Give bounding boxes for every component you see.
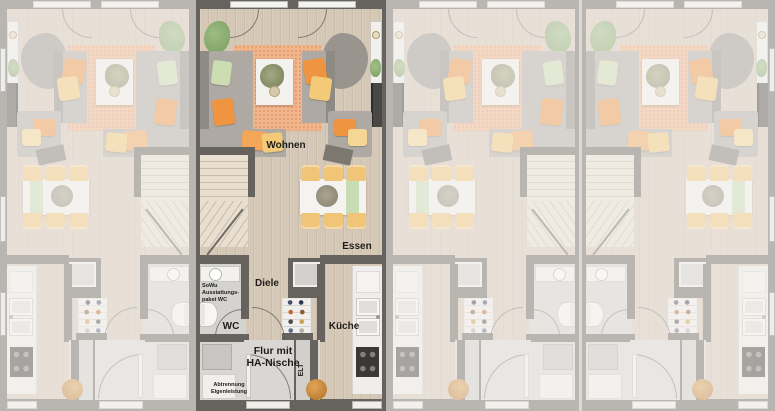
cushion <box>153 98 177 126</box>
stair-wall <box>134 147 189 155</box>
wall-left <box>579 0 586 411</box>
wall-top <box>579 0 775 9</box>
cushion <box>261 132 284 153</box>
stair-wall <box>633 147 641 197</box>
dining-chair <box>347 165 366 181</box>
dining-chair <box>710 165 729 181</box>
interior-wall <box>143 255 189 264</box>
dining-chair <box>301 165 320 181</box>
unit-floor <box>586 9 768 399</box>
terrace-window-icon <box>101 1 159 8</box>
dining-chair <box>69 165 88 181</box>
entry-door-leaf <box>246 354 251 398</box>
interior-wall <box>393 255 455 264</box>
interior-wall <box>450 264 458 342</box>
dining-chair <box>23 165 42 181</box>
sink-icon <box>167 268 180 281</box>
dining-chair <box>324 213 343 229</box>
wall-bottom <box>193 399 389 411</box>
kitchen-cabinet <box>356 271 380 293</box>
plant-icon <box>370 59 381 77</box>
stair-wall <box>247 147 255 197</box>
cushion <box>539 98 563 126</box>
basket-icon <box>306 379 327 400</box>
cushion <box>157 60 179 86</box>
cushion <box>597 60 619 86</box>
floorplan-canvas: Wohnen Essen Diele WC Küche Flur mit HA-… <box>0 0 775 411</box>
decor-plate-icon <box>372 31 380 39</box>
plant-icon <box>491 64 515 88</box>
decor-plate-icon <box>758 31 766 39</box>
kitchen-window-threshold <box>7 401 37 409</box>
shoes-icon <box>464 298 493 335</box>
entry-door-threshold <box>485 401 529 409</box>
unit-floor <box>200 9 382 399</box>
tv-icon <box>757 83 768 127</box>
toilet-icon <box>184 304 189 325</box>
wall-right <box>386 0 393 411</box>
table-runner <box>346 179 359 215</box>
centerpiece-icon <box>702 185 724 207</box>
cushion <box>348 129 367 146</box>
cushion <box>57 76 81 102</box>
side-window <box>0 196 6 242</box>
door-swing-icon <box>130 9 159 38</box>
door-swing-icon <box>252 307 285 340</box>
toilet-icon <box>570 304 575 325</box>
dining-chair <box>409 213 428 229</box>
faucet-icon <box>9 315 13 319</box>
cooktop-icon <box>356 347 379 377</box>
cushion <box>105 132 128 153</box>
decor-plate-icon <box>9 31 17 39</box>
cushion <box>211 98 235 126</box>
door-swing-icon <box>448 9 477 38</box>
interior-wall <box>64 264 72 342</box>
vase-icon <box>269 86 280 97</box>
basket-icon <box>692 379 713 400</box>
side-window <box>0 292 6 336</box>
toilet-icon <box>200 304 205 325</box>
dining-chair <box>347 213 366 229</box>
cushion <box>597 98 621 126</box>
entry-door-threshold <box>632 401 676 409</box>
plant-icon <box>105 64 129 88</box>
dining-chair <box>324 165 343 181</box>
terrace-window-icon <box>33 1 91 8</box>
interior-wall <box>7 255 69 264</box>
faucet-icon <box>762 315 766 319</box>
dining-chair <box>301 213 320 229</box>
side-window <box>769 48 775 92</box>
cushion <box>309 76 333 102</box>
cushion <box>734 129 753 146</box>
entry-door-leaf <box>524 354 529 398</box>
plant-icon <box>590 21 616 53</box>
dining-chair <box>46 165 65 181</box>
cushion <box>443 76 467 102</box>
unit-1 <box>0 0 196 411</box>
door-swing-icon <box>616 9 645 38</box>
appliance <box>202 374 236 399</box>
sink-icon <box>595 268 608 281</box>
kitchen-cabinet <box>9 271 33 293</box>
door-swing-icon <box>638 307 671 340</box>
shoes-icon <box>282 298 311 335</box>
wall-left <box>193 0 200 411</box>
wall-top <box>193 0 389 9</box>
door-swing-icon <box>298 9 327 38</box>
door-swing-icon <box>516 9 545 38</box>
appliance <box>202 344 232 370</box>
faucet-icon <box>376 315 380 319</box>
side-window <box>769 292 775 336</box>
interior-wall <box>317 264 325 342</box>
kitchen-sink-icon <box>743 299 765 315</box>
centerpiece-icon <box>437 185 459 207</box>
dining-chair <box>687 165 706 181</box>
wall-top <box>386 0 582 9</box>
door-swing-icon <box>104 307 137 340</box>
kitchen-cabinet <box>395 271 419 293</box>
staircase-winder <box>141 201 189 247</box>
interior-wall <box>706 255 768 264</box>
built-in-cupboard <box>455 262 482 287</box>
basket-icon <box>448 379 469 400</box>
staircase-winder <box>527 201 575 247</box>
entry-door-threshold <box>246 401 290 409</box>
door-swing-icon <box>230 9 259 38</box>
plant-icon <box>8 59 19 77</box>
terrace-window-icon <box>684 1 742 8</box>
interior-wall <box>320 255 382 264</box>
unit-3 <box>386 0 582 411</box>
unit-4 <box>579 0 775 411</box>
cushion <box>22 129 41 146</box>
cooktop-icon <box>10 347 33 377</box>
terrace-window-icon <box>419 1 477 8</box>
tv-icon <box>371 83 382 127</box>
plant-icon <box>394 59 405 77</box>
faucet-icon <box>395 315 399 319</box>
kitchen-sink-icon <box>743 319 765 335</box>
vase-icon <box>495 86 506 97</box>
dining-chair <box>23 213 42 229</box>
unit-2 <box>193 0 389 411</box>
entry-door-leaf <box>632 354 637 398</box>
cushion <box>647 132 670 153</box>
appliance <box>543 344 573 370</box>
kitchen-sink-icon <box>357 319 379 335</box>
appliance <box>539 374 573 399</box>
sink-icon <box>553 268 566 281</box>
wall-top <box>0 0 196 9</box>
built-in-cupboard <box>69 262 96 287</box>
decor-plate-icon <box>395 31 403 39</box>
plant-icon <box>646 64 670 88</box>
kitchen-sink-icon <box>396 319 418 335</box>
terrace-window-icon <box>616 1 674 8</box>
wall-bottom <box>579 399 775 411</box>
unit-floor <box>393 9 575 399</box>
dining-chair <box>46 213 65 229</box>
dining-chair <box>432 165 451 181</box>
wall-bottom <box>386 399 582 411</box>
side-window <box>0 48 6 92</box>
kitchen-sink-icon <box>10 319 32 335</box>
cushion <box>491 132 514 153</box>
terrace-window-icon <box>230 1 288 8</box>
door-swing-icon <box>62 9 91 38</box>
centerpiece-icon <box>51 185 73 207</box>
terrace-window-icon <box>487 1 545 8</box>
dining-chair <box>455 213 474 229</box>
cooktop-icon <box>396 347 419 377</box>
kitchen-sink-icon <box>357 299 379 315</box>
shoes-icon <box>668 298 697 335</box>
basket-icon <box>62 379 83 400</box>
toilet-icon <box>586 304 591 325</box>
cushion <box>211 60 233 86</box>
side-window <box>769 196 775 242</box>
units-row <box>0 0 775 411</box>
vase-icon <box>655 86 666 97</box>
terrace-window-icon <box>298 1 356 8</box>
vase-icon <box>109 86 120 97</box>
interior-wall <box>529 255 575 264</box>
door-swing-icon <box>490 307 523 340</box>
dining-chair <box>687 213 706 229</box>
cushion <box>543 60 565 86</box>
plant-icon <box>204 21 230 53</box>
table-runner <box>732 179 745 215</box>
plant-icon <box>260 64 284 88</box>
entry-door-threshold <box>99 401 143 409</box>
appliance <box>153 374 187 399</box>
kitchen-window-threshold <box>352 401 382 409</box>
sink-icon <box>209 268 222 281</box>
dining-chair <box>69 213 88 229</box>
shoes-icon <box>78 298 107 335</box>
kitchen-sink-icon <box>10 299 32 315</box>
entry-door-leaf <box>138 354 143 398</box>
kitchen-window-threshold <box>393 401 423 409</box>
dining-chair <box>733 165 752 181</box>
cushion <box>408 129 427 146</box>
plant-icon <box>756 59 767 77</box>
dining-chair <box>455 165 474 181</box>
appliance <box>157 344 187 370</box>
kitchen-window-threshold <box>738 401 768 409</box>
interior-wall <box>586 255 632 264</box>
table-runner <box>30 179 43 215</box>
wall-bottom <box>0 399 196 411</box>
kitchen-sink-icon <box>396 299 418 315</box>
table-runner <box>416 179 429 215</box>
dining-chair <box>733 213 752 229</box>
unit-floor <box>7 9 189 399</box>
centerpiece-icon <box>316 185 338 207</box>
dining-chair <box>710 213 729 229</box>
door-swing-icon <box>684 9 713 38</box>
appliance <box>588 374 622 399</box>
built-in-cupboard <box>293 262 320 287</box>
interior-wall <box>703 264 711 342</box>
cushion <box>695 76 719 102</box>
dining-chair <box>409 165 428 181</box>
dining-chair <box>432 213 451 229</box>
appliance <box>588 344 618 370</box>
plant-icon <box>545 21 571 53</box>
built-in-cupboard <box>679 262 706 287</box>
stair-wall <box>520 147 575 155</box>
interior-wall <box>200 255 246 264</box>
cooktop-icon <box>742 347 765 377</box>
kitchen-cabinet <box>742 271 766 293</box>
plant-icon <box>159 21 185 53</box>
